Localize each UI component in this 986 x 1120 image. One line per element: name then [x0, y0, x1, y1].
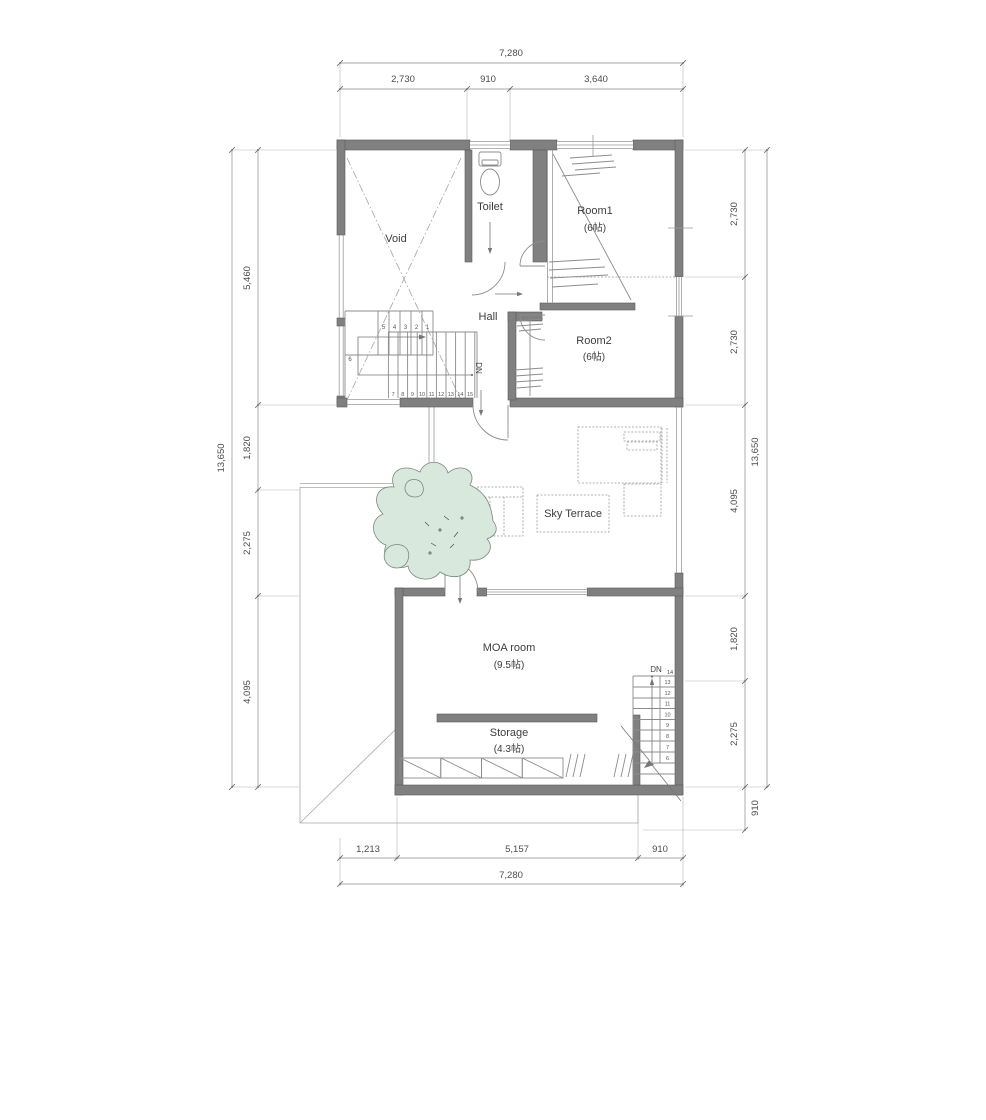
dim-top-seg-3: 3,640 — [584, 74, 608, 85]
room1-size: (6帖) — [584, 221, 606, 234]
stair-tread-11: 11 — [429, 392, 435, 398]
moa-room-label: MOA room — [483, 642, 536, 654]
dim-right-seg-5: 2,275 — [729, 722, 740, 746]
dim-left-seg-1: 5,460 — [242, 266, 253, 290]
dn-stair-tread-12: 12 — [664, 691, 670, 697]
room2-label: Room2 — [576, 335, 611, 347]
dim-left-total: 13,650 — [216, 443, 227, 472]
roof-outline — [300, 407, 638, 823]
stair-tread-15: 15 — [467, 392, 473, 398]
stair-tread-8: 8 — [401, 392, 404, 398]
floor-plan-svg: 7,280 2,730 910 3,640 1,213 5,157 910 7,… — [0, 0, 986, 1120]
stair-tread-10: 10 — [419, 392, 425, 398]
dn-stair-tread-13: 13 — [664, 680, 670, 686]
sky-terrace-text: Sky Terrace — [544, 508, 602, 520]
moa-room-size: (9.5帖) — [494, 658, 525, 671]
dim-bottom-seg-2: 5,157 — [505, 844, 529, 855]
dim-right-seg-3: 4,095 — [729, 489, 740, 513]
dim-left-seg-3: 2,275 — [242, 531, 253, 555]
stair-tread-2: 2 — [415, 325, 419, 331]
dn-stair-tread-6: 6 — [666, 756, 669, 762]
dimension-right: 2,730 2,730 4,095 1,820 2,275 910 13,650 — [643, 150, 769, 830]
dn-stair-tread-8: 8 — [666, 734, 669, 740]
dim-left-seg-2: 1,820 — [242, 436, 253, 460]
dimension-left: 13,650 5,460 1,820 2,275 4,095 — [216, 150, 336, 787]
stair-tread-13: 13 — [448, 392, 454, 398]
room2-size: (6帖) — [583, 350, 605, 363]
floor-plan-page: 7,280 2,730 910 3,640 1,213 5,157 910 7,… — [0, 0, 986, 1120]
void-cross — [347, 158, 461, 400]
dim-right-seg-1: 2,730 — [729, 202, 740, 226]
toilet-icon — [479, 152, 501, 195]
toilet-label: Toilet — [477, 201, 503, 213]
stair-tread-5: 5 — [382, 325, 386, 331]
dim-right-seg-6: 910 — [750, 800, 761, 816]
stair-tread-6: 6 — [348, 357, 352, 363]
dim-top-seg-2: 910 — [480, 74, 496, 85]
stair-lower: 13 12 11 10 9 8 7 6 DN 14 — [621, 665, 681, 801]
hall-terrace-door — [473, 405, 508, 440]
dn-stair-tread-7: 7 — [666, 745, 669, 751]
dim-right-total: 13,650 — [750, 437, 761, 466]
dim-bottom-seg-1: 1,213 — [356, 844, 380, 855]
dim-right-seg-2: 2,730 — [729, 330, 740, 354]
stair-tread-7: 7 — [392, 392, 395, 398]
dim-left-seg-4: 4,095 — [242, 680, 253, 704]
stair-tread-4: 4 — [393, 325, 397, 331]
stair-tread-1: 1 — [426, 325, 430, 331]
stair-tread-9: 9 — [411, 392, 414, 398]
dn-stair-tread-9: 9 — [666, 723, 669, 729]
stair-tread-3: 3 — [404, 325, 408, 331]
dim-top-total: 7,280 — [499, 48, 523, 59]
dim-bottom-seg-3: 910 — [652, 844, 668, 855]
tree-icon — [373, 462, 496, 579]
dn-stair-top-step: 14 — [667, 670, 673, 676]
dn-stair-tread-11: 11 — [665, 702, 671, 708]
storage-door-panels — [400, 754, 633, 778]
dn-stair-label: DN — [650, 665, 662, 674]
stair-upper: 5 4 3 2 1 6 7 8 9 10 11 12 13 14 15 DN — [345, 311, 483, 398]
stair-tread-12: 12 — [438, 392, 444, 398]
dim-bottom-total: 7,280 — [499, 870, 523, 881]
dimension-bottom: 1,213 5,157 910 7,280 — [340, 797, 683, 886]
stair-upper-dn-label: DN — [474, 362, 483, 374]
storage-label: Storage — [490, 727, 529, 739]
toilet-door-arc — [472, 262, 505, 295]
storage-size: (4.3帖) — [494, 742, 525, 755]
stair-tread-14: 14 — [457, 392, 463, 398]
sky-terrace-label: Sky Terrace — [537, 495, 609, 532]
room1-label: Room1 — [577, 205, 612, 217]
dim-right-seg-4: 1,820 — [729, 627, 740, 651]
dimension-top: 7,280 2,730 910 3,640 — [340, 48, 683, 140]
void-label: Void — [385, 233, 406, 245]
hall-label: Hall — [479, 311, 498, 323]
dn-stair-tread-10: 10 — [664, 713, 670, 719]
dim-top-seg-1: 2,730 — [391, 74, 415, 85]
